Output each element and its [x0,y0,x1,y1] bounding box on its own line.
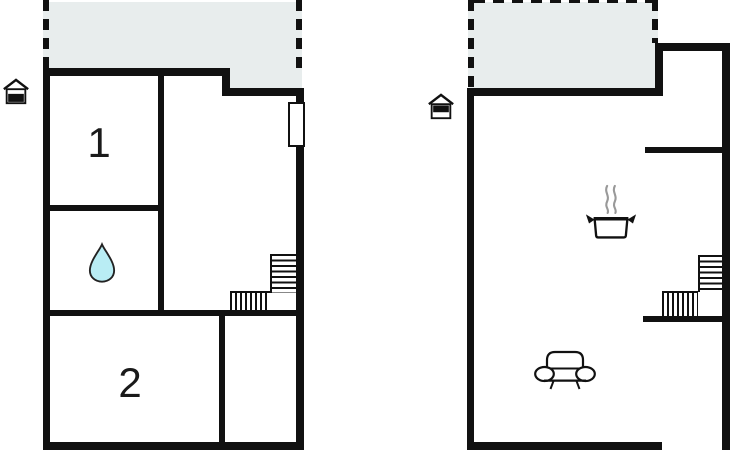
wall [43,68,230,76]
terrace-dashed-border [652,0,658,43]
room-2-label: 2 [111,362,149,404]
window [288,102,305,147]
wall [158,76,164,316]
wall [467,88,474,450]
house-ground-floor-icon [2,78,30,106]
staircase-upper-run [698,255,724,292]
terrace-dashed-border [474,0,652,3]
wall [722,43,730,450]
wall [50,205,158,211]
staircase-lower-run [662,291,698,318]
water-drop-icon [88,242,116,284]
terrace-area [230,2,302,88]
wall [645,147,722,153]
terrace-dashed-border [296,0,302,68]
wall [43,68,50,450]
terrace-dashed-border [468,0,474,88]
wall [222,88,304,96]
terrace-area [468,2,658,88]
wall [43,442,304,450]
wall [655,43,730,51]
floor-plan-stage: 1 2 [0,0,730,450]
staircase-upper-run [270,254,298,293]
room-1-label: 1 [80,122,118,164]
cooking-pot-icon [584,182,638,240]
staircase-lower-run [230,291,270,312]
sofa-icon [534,347,598,391]
wall [467,442,662,450]
wall [219,316,225,442]
terrace-dashed-border [43,0,49,68]
wall [467,88,663,96]
house-upper-floor-icon [427,93,455,121]
